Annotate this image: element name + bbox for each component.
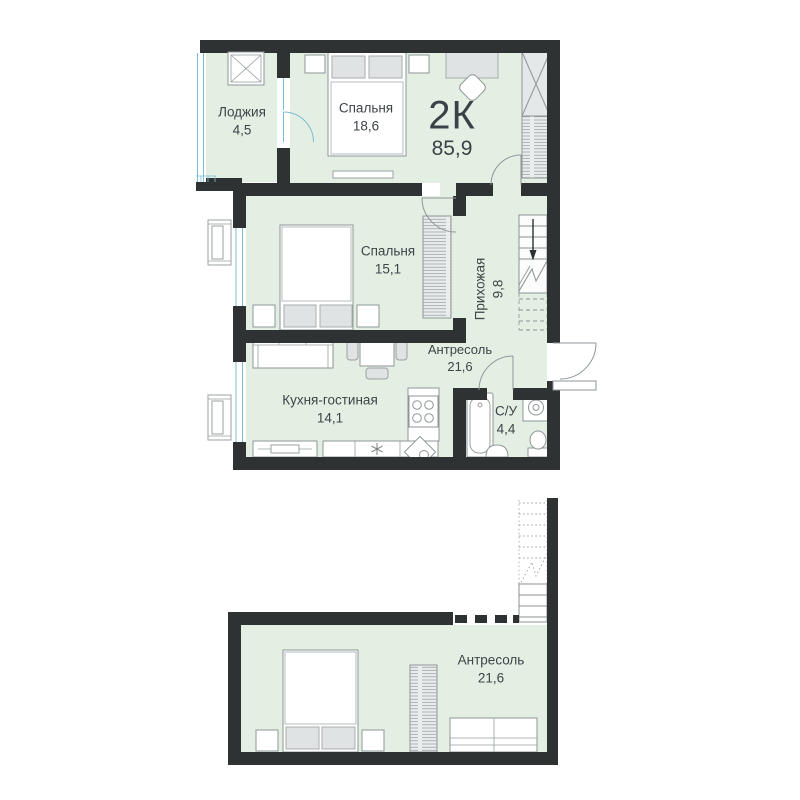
desk-icon (446, 52, 498, 78)
stove-icon (409, 396, 438, 427)
mezzanine-ref-label: Антресоль 21,6 (428, 342, 492, 376)
mezzanine-name: Антресоль (458, 651, 525, 669)
bathroom-name: С/У (495, 402, 517, 420)
ac-bracket-icon (208, 395, 231, 440)
ac-bracket-icon (208, 220, 231, 265)
bedroom-top-name: Спальня (339, 99, 393, 117)
mezzanine-ref-name: Антресоль (428, 342, 492, 359)
bathroom-label: С/У 4,4 (495, 402, 517, 437)
loggia-label: Лоджия 4,5 (218, 103, 266, 138)
bathroom-sink-icon (486, 445, 508, 457)
mezzanine-area: 21,6 (458, 669, 525, 687)
rug-icon (333, 171, 393, 178)
bedroom-mid-name: Спальня (361, 242, 415, 260)
hallway-name: Прихожая (471, 258, 489, 321)
wardrobe-icon (410, 665, 437, 752)
mezzanine-ref-area: 21,6 (428, 359, 492, 376)
wardrobe-icon (522, 52, 550, 178)
bedroom-mid-window (233, 228, 246, 306)
hallway-label: Прихожая 9,8 (471, 258, 506, 321)
kitchen-window (233, 362, 246, 442)
bedroom-top-area: 18,6 (339, 117, 393, 135)
stairs-mezzanine-icon (519, 500, 547, 622)
floorplan-graphics (0, 0, 800, 800)
apartment-type-label: 2К (428, 94, 476, 139)
entrance-door (553, 343, 596, 390)
loggia-storage-icon (228, 52, 264, 85)
mezzanine-label: Антресоль 21,6 (458, 651, 525, 686)
hallway-area: 9,8 (489, 258, 507, 321)
bed-double-icon (283, 650, 358, 752)
bedroom-mid-area: 15,1 (361, 260, 415, 278)
bed-double-icon (280, 225, 353, 330)
sofa-icon (450, 718, 537, 752)
bedroom-mid-label: Спальня 15,1 (361, 242, 415, 277)
kitchen-living-name: Кухня-гостиная (282, 391, 378, 409)
bedroom-top-label: Спальня 18,6 (339, 99, 393, 134)
tv-console-icon (253, 441, 317, 457)
kitchen-living-area: 14,1 (282, 409, 378, 427)
bathroom-area: 4,4 (495, 420, 517, 438)
loggia-name: Лоджия (218, 103, 266, 121)
loggia-area: 4,5 (218, 121, 266, 139)
kitchen-living-label: Кухня-гостиная 14,1 (282, 391, 378, 426)
dashed-opening (455, 615, 519, 623)
toilet-icon (528, 431, 548, 457)
apartment-total-area: 85,9 (432, 137, 473, 161)
floorplan-canvas: Лоджия 4,5 Спальня 18,6 2К 85,9 Спальня … (0, 0, 800, 800)
